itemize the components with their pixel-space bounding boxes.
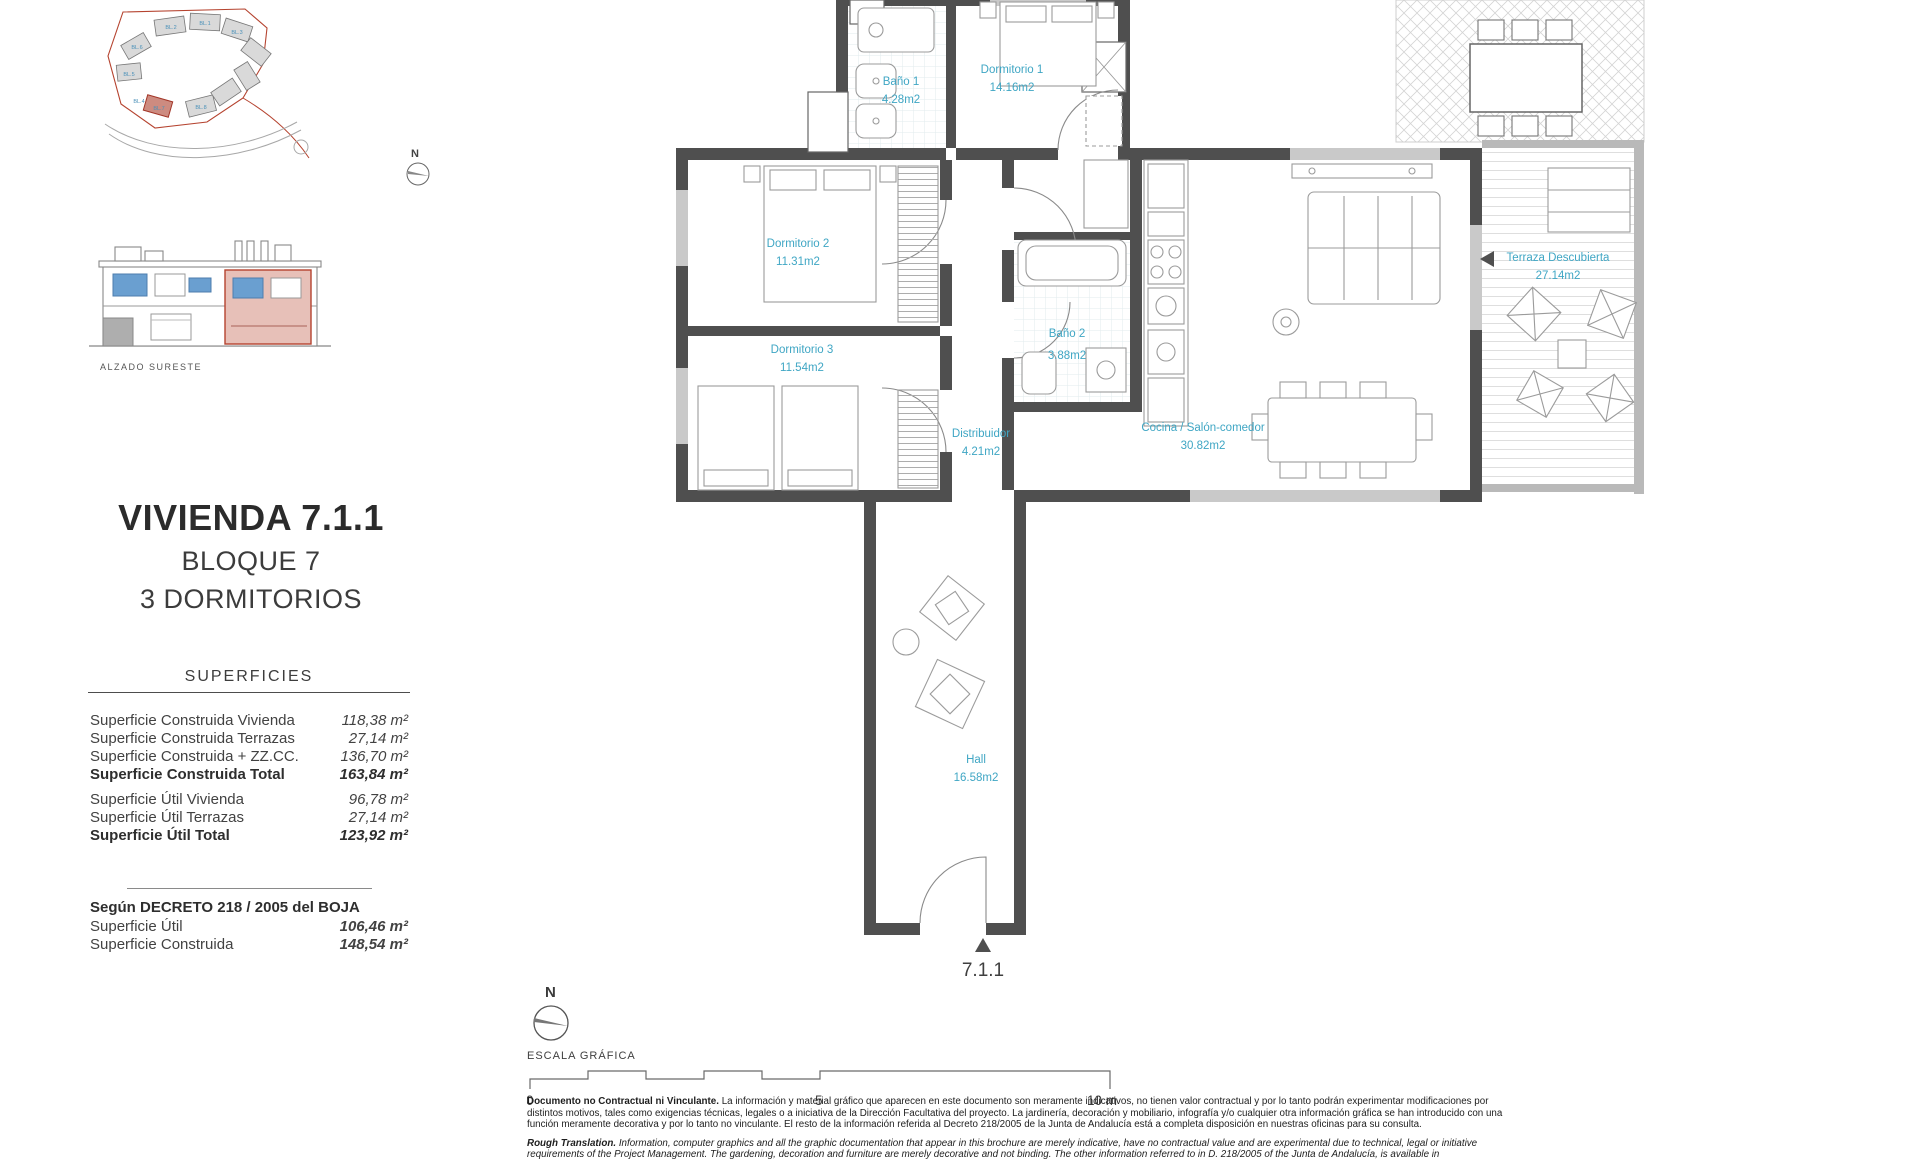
room-label-hall: Hall <box>966 754 986 766</box>
wardrobe-icon <box>898 390 938 488</box>
block-label: BL.6 <box>131 45 142 51</box>
table-row: Superficie Construida148,54 m² <box>88 936 410 954</box>
table-row: Superficie Construida Vivienda118,38 m² <box>88 712 410 730</box>
divider <box>88 692 410 693</box>
room-label-terraza: Terraza Descubierta <box>1507 252 1611 264</box>
row-label: Superficie Útil Terrazas <box>90 809 244 827</box>
room-area-distribuidor: 4.21m2 <box>962 446 1000 458</box>
room-label-banio2: Baño 2 <box>1049 328 1085 340</box>
site-boundary-tail <box>243 98 309 158</box>
table-row: Superficie Útil106,46 m² <box>88 918 410 936</box>
hall-decor-icon <box>893 576 985 729</box>
room-label-dorm3: Dormitorio 3 <box>771 344 834 356</box>
block-label: BL.3 <box>231 30 242 36</box>
row-value: 106,46 m² <box>340 918 408 936</box>
room-area-terraza: 27.14m2 <box>1536 270 1581 282</box>
scale-caption: ESCALA GRÁFICA <box>527 1050 636 1062</box>
legal-lead-es: Documento no Contractual ni Vinculante. <box>527 1096 719 1107</box>
scale-bar-line <box>530 1071 1110 1089</box>
north-compass-icon <box>530 1002 574 1046</box>
subtitle-rooms: 3 DORMITORIOS <box>85 584 417 615</box>
room-area-dorm2: 11.31m2 <box>776 256 820 268</box>
block-label: BL.1 <box>199 21 210 27</box>
block-label: BL.5 <box>123 72 134 78</box>
room-area-dorm1: 14.16m2 <box>990 82 1035 94</box>
row-label: Superficie Construida Terrazas <box>90 730 295 748</box>
block-label: BL.7 <box>153 106 164 112</box>
wardrobe-icon <box>898 166 938 322</box>
north-indicator-site-label: N <box>411 148 419 160</box>
decreto-lead: Según DECRETO 218 / 2005 del BOJA <box>90 899 410 916</box>
row-label: Superficie Construida Vivienda <box>90 712 295 730</box>
room-area-hall: 16.58m2 <box>954 772 999 784</box>
superficies-table: SUPERFICIES Superficie Construida Vivien… <box>88 668 410 845</box>
legal-disclaimer: Documento no Contractual ni Vinculante. … <box>527 1096 1505 1161</box>
coffee-table-icon <box>1281 317 1291 327</box>
table-row: Superficie Construida Terrazas27,14 m² <box>88 730 410 748</box>
table-row-total: Superficie Útil Total123,92 m² <box>88 827 410 845</box>
construida-rows: Superficie Construida Vivienda118,38 m² … <box>88 712 410 784</box>
row-value: 136,70 m² <box>340 748 408 766</box>
legal-paragraph-en: Rough Translation. Information, computer… <box>527 1138 1505 1161</box>
elevation-caption: ALZADO SURESTE <box>100 362 202 372</box>
decreto-block: Según DECRETO 218 / 2005 del BOJA Superf… <box>88 888 410 954</box>
block-label: BL.8 <box>195 105 206 111</box>
dining-table-icon <box>1252 382 1432 478</box>
table-row-total: Superficie Construida Total163,84 m² <box>88 766 410 784</box>
row-value: 96,78 m² <box>349 791 408 809</box>
bed-icon <box>744 166 896 302</box>
elevation-drawing <box>85 228 335 358</box>
row-value: 27,14 m² <box>349 730 408 748</box>
row-value: 118,38 m² <box>342 712 408 730</box>
cabinet-icon <box>1084 160 1128 228</box>
row-label: Superficie Útil Total <box>90 827 230 845</box>
legal-lead-en: Rough Translation. <box>527 1138 616 1149</box>
site-plan: BL.1 BL.2 BL.3 BL.4 BL.5 BL.6 BL.7 BL.8 <box>95 6 325 176</box>
floor-plan: Baño 1 4.28m2 Dormitorio 1 14.16m2 Dormi… <box>530 0 1660 985</box>
brochure-page: BL.1 BL.2 BL.3 BL.4 BL.5 BL.6 BL.7 BL.8 … <box>0 0 1920 1166</box>
table-row: Superficie Útil Terrazas27,14 m² <box>88 809 410 827</box>
subtitle-block: BLOQUE 7 <box>85 546 417 577</box>
page-title: VIVIENDA 7.1.1 <box>85 497 417 539</box>
util-rows: Superficie Útil Vivienda96,78 m² Superfi… <box>88 791 410 845</box>
row-label: Superficie Construida <box>90 936 233 954</box>
entrance-arrow-icon <box>975 938 991 952</box>
row-label: Superficie Construida + ZZ.CC. <box>90 748 299 766</box>
room-label-banio1: Baño 1 <box>883 76 919 88</box>
room-label-cocina: Cocina / Salón-comedor <box>1141 422 1265 434</box>
row-label: Superficie Útil Vivienda <box>90 791 244 809</box>
superficies-header: SUPERFICIES <box>88 668 410 686</box>
row-value: 123,92 m² <box>340 827 408 845</box>
unit-label: 7.1.1 <box>962 960 1004 981</box>
table-row: Superficie Construida + ZZ.CC.136,70 m² <box>88 748 410 766</box>
kitchen-counter-icon <box>1144 160 1188 426</box>
sofa-icon <box>1292 164 1440 304</box>
title-block: VIVIENDA 7.1.1 BLOQUE 7 3 DORMITORIOS <box>85 497 417 615</box>
table-row: Superficie Útil Vivienda96,78 m² <box>88 791 410 809</box>
room-area-cocina: 30.82m2 <box>1181 440 1226 452</box>
row-label: Superficie Construida Total <box>90 766 285 784</box>
room-label-dorm1: Dormitorio 1 <box>981 64 1044 76</box>
twin-beds-icon <box>698 386 858 490</box>
north-indicator-scale-label: N <box>545 984 556 1001</box>
room-area-banio1: 4.28m2 <box>882 94 920 106</box>
room-label-distribuidor: Distribuidor <box>952 428 1010 440</box>
block-label: BL.2 <box>165 25 176 31</box>
room-area-dorm3: 11.54m2 <box>780 362 824 374</box>
row-value: 148,54 m² <box>340 936 408 954</box>
room-label-dorm2: Dormitorio 2 <box>767 238 830 250</box>
legal-paragraph-es: Documento no Contractual ni Vinculante. … <box>527 1096 1505 1131</box>
legal-text-en: Information, computer graphics and all t… <box>527 1138 1477 1161</box>
row-value: 27,14 m² <box>349 809 408 827</box>
garage-door <box>103 318 133 346</box>
north-compass-site-icon <box>404 160 432 188</box>
pergola-table-icon <box>1470 20 1582 136</box>
wardrobe-dashed-icon <box>1086 96 1122 146</box>
divider <box>127 888 372 889</box>
row-value: 163,84 m² <box>340 766 408 784</box>
highlighted-unit-elevation <box>225 270 311 344</box>
room-area-banio2: 3.88m2 <box>1048 350 1086 362</box>
block-label: BL.4 <box>133 99 144 105</box>
row-label: Superficie Útil <box>90 918 183 936</box>
